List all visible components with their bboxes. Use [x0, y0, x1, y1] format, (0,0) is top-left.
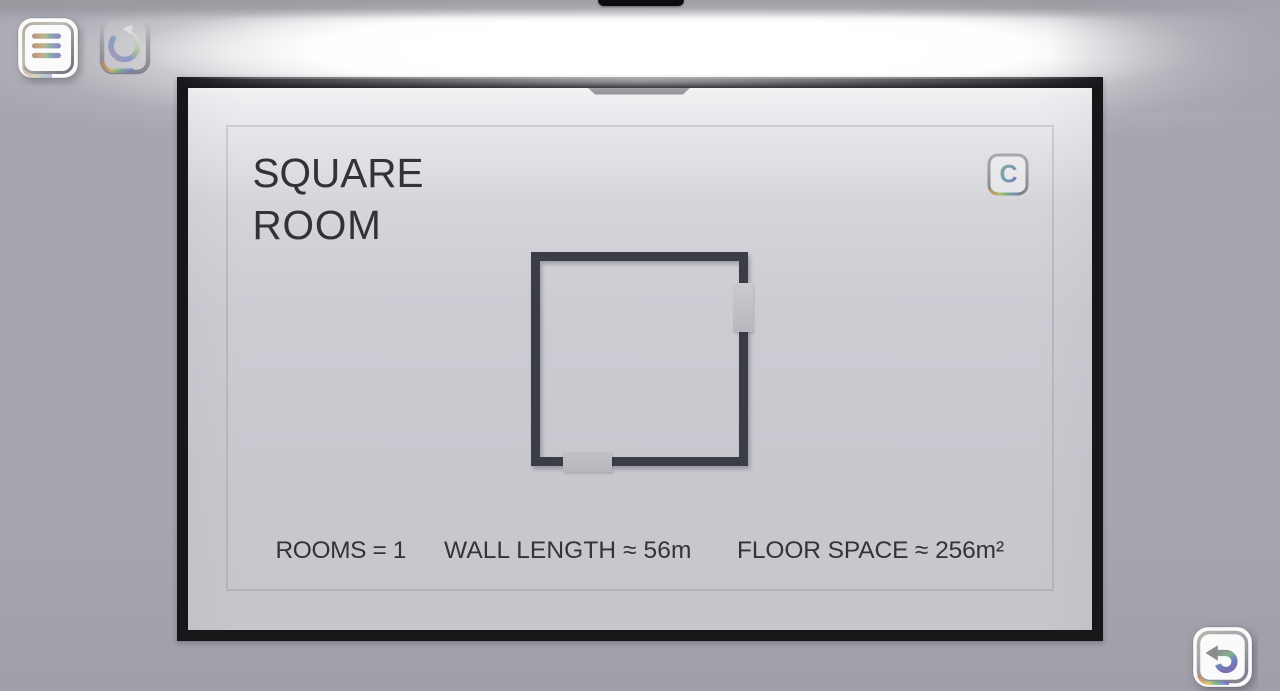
svg-text:C: C [999, 161, 1017, 189]
